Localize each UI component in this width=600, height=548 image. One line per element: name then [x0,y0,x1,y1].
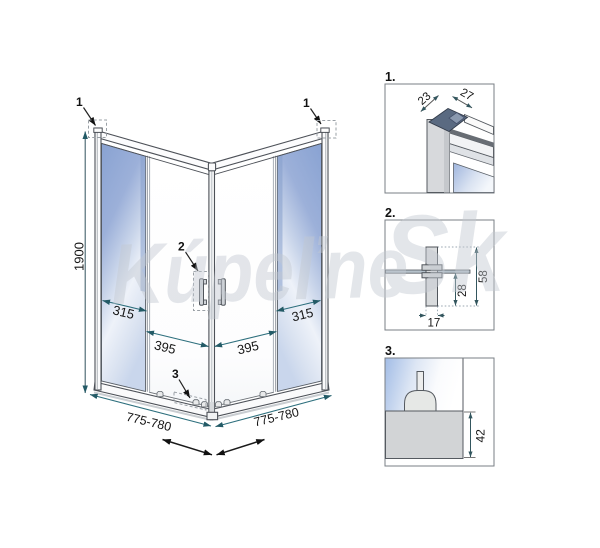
svg-text:1900: 1900 [72,242,87,271]
svg-text:1: 1 [76,95,83,109]
svg-text:Kúpeľne: Kúpeľne [110,219,409,323]
svg-text:42: 42 [474,429,488,443]
svg-text:1.: 1. [385,70,395,84]
svg-text:17: 17 [428,318,441,330]
svg-text:3.: 3. [385,344,395,358]
svg-text:3: 3 [172,367,179,381]
svg-text:1: 1 [303,96,310,110]
svg-text:Sk: Sk [382,191,511,318]
